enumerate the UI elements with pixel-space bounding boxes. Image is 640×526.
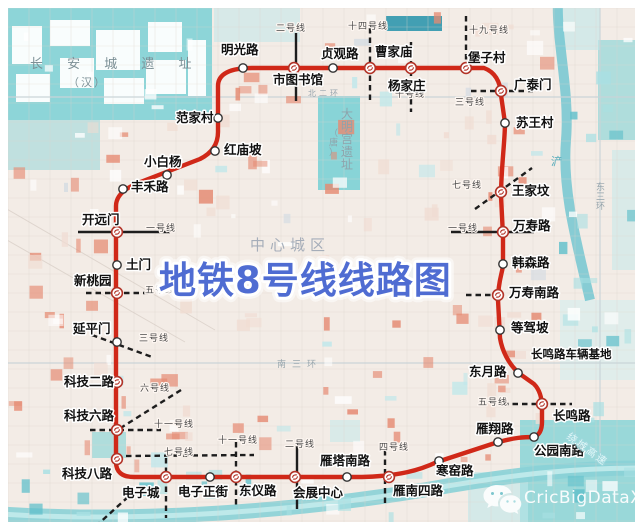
city-block [277,426,291,432]
station-label-杨家庄: 杨家庄 [388,78,426,93]
map-area-label: 东三环 [596,181,605,212]
city-block [324,358,332,367]
city-block [543,513,556,519]
city-block [301,479,314,483]
city-block [53,319,63,324]
station-label-电子正街: 电子正街 [178,484,229,499]
city-block [485,454,491,460]
station-label-广泰门: 广泰门 [514,77,552,92]
city-block [576,512,585,519]
station-marker-科技八路 [112,454,123,465]
station-label-科技二路: 科技二路 [64,374,115,389]
city-block [569,212,577,217]
city-block [134,460,139,473]
city-block [440,160,453,171]
city-block [28,255,42,269]
city-block [259,437,271,450]
station-marker-小白杨 [163,171,171,179]
station-marker-东仪路 [231,472,242,483]
city-block [284,214,291,223]
ruins-block [16,74,50,102]
station-label-会展中心: 会展中心 [293,485,344,500]
station-label-土门: 土门 [126,257,151,272]
station-marker-土门 [113,261,121,269]
city-block [530,30,540,35]
station-marker-丰禾路 [119,185,127,193]
station-label-韩森路: 韩森路 [512,255,550,270]
station-label-曹家庙: 曹家庙 [375,44,413,59]
station-label-电子城: 电子城 [122,485,160,500]
city-block [324,317,330,330]
water-zone [386,16,442,31]
city-block [118,513,128,523]
station-circle [514,369,522,377]
city-block [166,434,180,440]
city-block [347,409,358,414]
city-block [568,308,580,321]
city-block [184,180,197,191]
interchange-circle [537,399,548,410]
station-circle [501,119,509,127]
line-label: 三号线 [139,332,169,344]
station-label-苏王村: 苏王村 [516,115,554,130]
city-block [392,320,400,327]
station-marker-电子城 [161,472,172,483]
city-block [465,116,474,129]
city-block [466,88,471,98]
station-marker-万寿路 [498,227,509,238]
station-label-延平门: 延平门 [72,321,111,336]
city-block [199,190,213,204]
city-block [108,127,122,139]
station-marker-雁翔路 [494,438,502,446]
station-circle [499,260,507,268]
city-block [86,301,98,311]
line-label: 十一号线 [218,434,258,446]
station-circle [496,326,504,334]
water-zone [598,40,640,140]
station-label-雁塔南路: 雁塔南路 [320,453,371,468]
station-label-市图书馆: 市图书馆 [273,72,323,87]
city-block [71,178,79,192]
station-marker-韩森路 [499,260,507,268]
city-block [229,104,241,111]
station-label-贞观路: 贞观路 [321,46,359,61]
station-circle [494,438,502,446]
interchange-circle [231,472,242,483]
city-block [582,278,597,283]
city-block [207,208,216,217]
station-label-东月路: 东月路 [469,364,507,379]
station-circle [119,185,127,193]
station-circle [211,147,219,155]
city-block [64,357,74,369]
metro-map-screenshot: 二号线二号线一号线一号线十四号线十号线十九号线三号线七号线五号线五号线三号线六号… [0,0,640,526]
line-label: 三号线 [455,96,485,108]
interchange-circle [496,86,507,97]
city-block [106,155,120,163]
interchange-circle [498,227,509,238]
city-block [378,159,389,174]
city-block [586,134,596,142]
station-label-科技六路: 科技六路 [64,408,115,423]
station-label-东仪路: 东仪路 [239,483,277,498]
city-block [145,89,157,99]
station-marker-东月路 [514,369,522,377]
city-block [194,224,201,237]
station-marker-苏王村 [501,119,509,127]
city-block [30,180,36,191]
interchange-circle [384,472,395,483]
line-label: 四号线 [379,441,409,453]
xian-line8-map: 二号线二号线一号线一号线十四号线十号线十九号线三号线七号线五号线五号线三号线六号… [0,0,640,526]
city-block [51,369,63,380]
city-block [596,72,611,85]
station-label-新桃园: 新桃园 [74,273,112,288]
city-block [348,216,352,223]
station-label-小白杨: 小白杨 [143,154,182,169]
interchange-circle [112,425,123,436]
city-block [244,73,260,83]
city-block [85,440,90,455]
city-block [335,396,352,404]
city-block [364,218,372,231]
station-marker-科技六路 [112,425,123,436]
city-block [593,402,604,416]
station-label-明光路: 明光路 [221,42,259,57]
station-circle [113,261,121,269]
city-block [385,396,397,401]
city-block [29,504,42,515]
city-block [563,22,575,32]
station-label-开远门: 开远门 [82,212,120,227]
station-label-长鸣路: 长鸣路 [553,408,591,423]
water-zone [330,420,360,442]
city-block [16,452,32,457]
city-block [574,278,583,289]
city-block [245,313,257,317]
interchange-circle [365,63,376,74]
line-label: 七号线 [452,179,482,191]
station-label-红庙坡: 红庙坡 [224,142,262,157]
city-block [122,396,126,409]
city-block [24,33,28,41]
city-block [606,336,619,346]
line-label: 十九号线 [469,24,509,36]
city-block [592,326,598,332]
city-block [62,232,68,247]
city-block [258,85,267,95]
station-circle [343,473,351,481]
city-block [322,342,332,347]
map-area-label: 中心城区 [250,236,330,254]
city-block [187,39,193,51]
city-block [271,201,277,206]
station-circle [113,338,121,346]
city-block [286,96,301,103]
interchange-circle [290,472,301,483]
city-block [253,161,267,167]
station-marker-万寿南路 [493,290,504,301]
city-block [110,170,121,182]
interchange-circle [161,472,172,483]
city-block [434,12,441,23]
city-block [76,239,81,253]
city-block [478,316,493,327]
line-label: 七号线 [164,446,194,458]
ruins-block [148,22,182,52]
city-block [236,88,241,101]
city-block [531,313,541,320]
city-block [603,105,613,112]
ruins-block [50,20,90,46]
station-marker-红庙坡 [211,147,219,155]
city-block [570,112,577,120]
city-block [531,151,543,156]
line-label: 二号线 [276,22,306,34]
city-block [30,286,43,299]
city-block [246,318,261,327]
city-block [88,122,99,133]
station-circle [239,64,247,72]
station-marker-雁南四路 [384,472,395,483]
map-area-label: 浐 [551,155,562,168]
station-marker-明光路 [239,64,247,72]
map-area-label: （唐） [329,128,338,158]
station-circle [530,433,538,441]
city-block [396,123,400,135]
station-label-雁南四路: 雁南四路 [393,483,444,498]
map-title-group: 地铁8号线线路图 地铁8号线线路图 [159,259,452,302]
city-block [559,242,567,254]
city-block [444,132,449,138]
line-label: 十一号线 [154,418,194,430]
station-circle [163,171,171,179]
ruins-block [104,78,144,104]
city-block [609,131,623,140]
city-block [323,387,328,395]
station-label-范家村: 范家村 [176,110,214,125]
station-label-堡子村: 堡子村 [468,50,506,65]
station-marker-王家坟 [496,187,507,198]
station-marker-公园南路 [530,433,538,441]
city-block [605,312,619,324]
map-area-label: 北二环 [308,89,341,98]
city-block [547,471,552,486]
city-block [527,41,543,55]
watermark-text: CricBigDataXA [524,488,640,508]
station-marker-杨家庄 [406,63,417,74]
city-block [43,470,50,474]
station-marker-曹家庙 [365,63,376,74]
station-marker-开远门 [112,227,123,238]
station-label-雁翔路: 雁翔路 [476,421,514,436]
interchange-circle [112,227,123,238]
interchange-circle [406,63,417,74]
city-block [568,476,584,487]
line-label: 二号线 [285,438,315,450]
map-area-label: 大明宫遗址 [341,107,353,171]
city-block [255,93,268,103]
city-block [354,39,371,46]
station-label-王家坟: 王家坟 [512,183,550,198]
city-block [624,38,633,42]
city-block [233,423,244,433]
station-marker-等驾坡 [496,326,504,334]
station-label-等驾坡: 等驾坡 [510,320,549,335]
city-block [380,92,392,107]
city-block [127,446,131,454]
city-block [627,210,636,222]
city-block [258,416,269,422]
depot-label: 长鸣路车辆基地 [531,347,612,361]
water-zone [318,96,360,190]
station-label-丰禾路: 丰禾路 [131,179,169,194]
city-block [77,512,91,516]
station-circle [214,114,222,122]
city-block [625,329,632,343]
city-block [78,493,90,505]
line-label: 十四号线 [348,20,388,32]
city-block [152,105,164,109]
station-marker-贞观路 [329,64,337,72]
line-label: 一号线 [146,222,176,234]
city-block [333,178,347,188]
station-label-寒窑路: 寒窑路 [435,463,474,478]
city-block [507,312,521,318]
city-block [231,214,235,218]
line-label: 五号线 [478,396,508,408]
city-block [64,183,68,192]
city-block [352,77,357,88]
city-block [94,240,108,254]
station-marker-雁塔南路 [343,473,351,481]
interchange-circle [112,454,123,465]
interchange-circle [112,288,123,299]
city-block [487,135,496,144]
city-block [215,166,227,173]
city-block [185,432,192,441]
line-label: 一号线 [448,222,478,234]
interchange-circle [496,187,507,198]
map-title: 地铁8号线线路图 [159,259,452,302]
station-circle [206,473,214,481]
city-block [578,339,592,347]
city-block [425,208,439,221]
city-block [487,383,496,397]
station-label-万寿路: 万寿路 [512,218,551,233]
city-block [14,401,22,411]
city-block [216,196,230,210]
city-block [456,314,468,324]
city-block [486,110,492,123]
station-marker-会展中心 [290,472,301,483]
city-block [540,57,554,70]
city-block [464,373,468,385]
line-label: 六号线 [140,382,170,394]
city-block [419,165,435,178]
city-block [326,504,339,515]
station-marker-延平门 [113,338,121,346]
city-block [461,457,468,462]
station-label-万寿南路: 万寿南路 [508,285,560,300]
station-marker-电子正街 [206,473,214,481]
city-block [423,357,433,368]
city-block [239,86,252,93]
interchange-circle [493,290,504,301]
city-block [14,167,26,179]
city-block [123,411,131,416]
city-block [394,432,401,443]
city-block [373,371,382,378]
city-block [183,406,190,417]
map-area-label: 南三环 [277,358,322,370]
city-block [177,186,184,195]
city-block [577,214,588,229]
station-circle [329,64,337,72]
map-area-label: 长 安 城 遗 址 [30,57,202,72]
station-marker-新桃园 [112,288,123,299]
city-block [498,386,506,393]
station-marker-广泰门 [496,86,507,97]
map-area-label: （汉） [68,76,107,89]
city-block [75,133,85,138]
station-marker-长鸣路 [537,399,548,410]
station-label-科技八路: 科技八路 [62,466,113,481]
city-block [287,505,292,515]
city-block [388,418,395,428]
station-marker-范家村 [214,114,222,122]
city-block [22,479,30,493]
